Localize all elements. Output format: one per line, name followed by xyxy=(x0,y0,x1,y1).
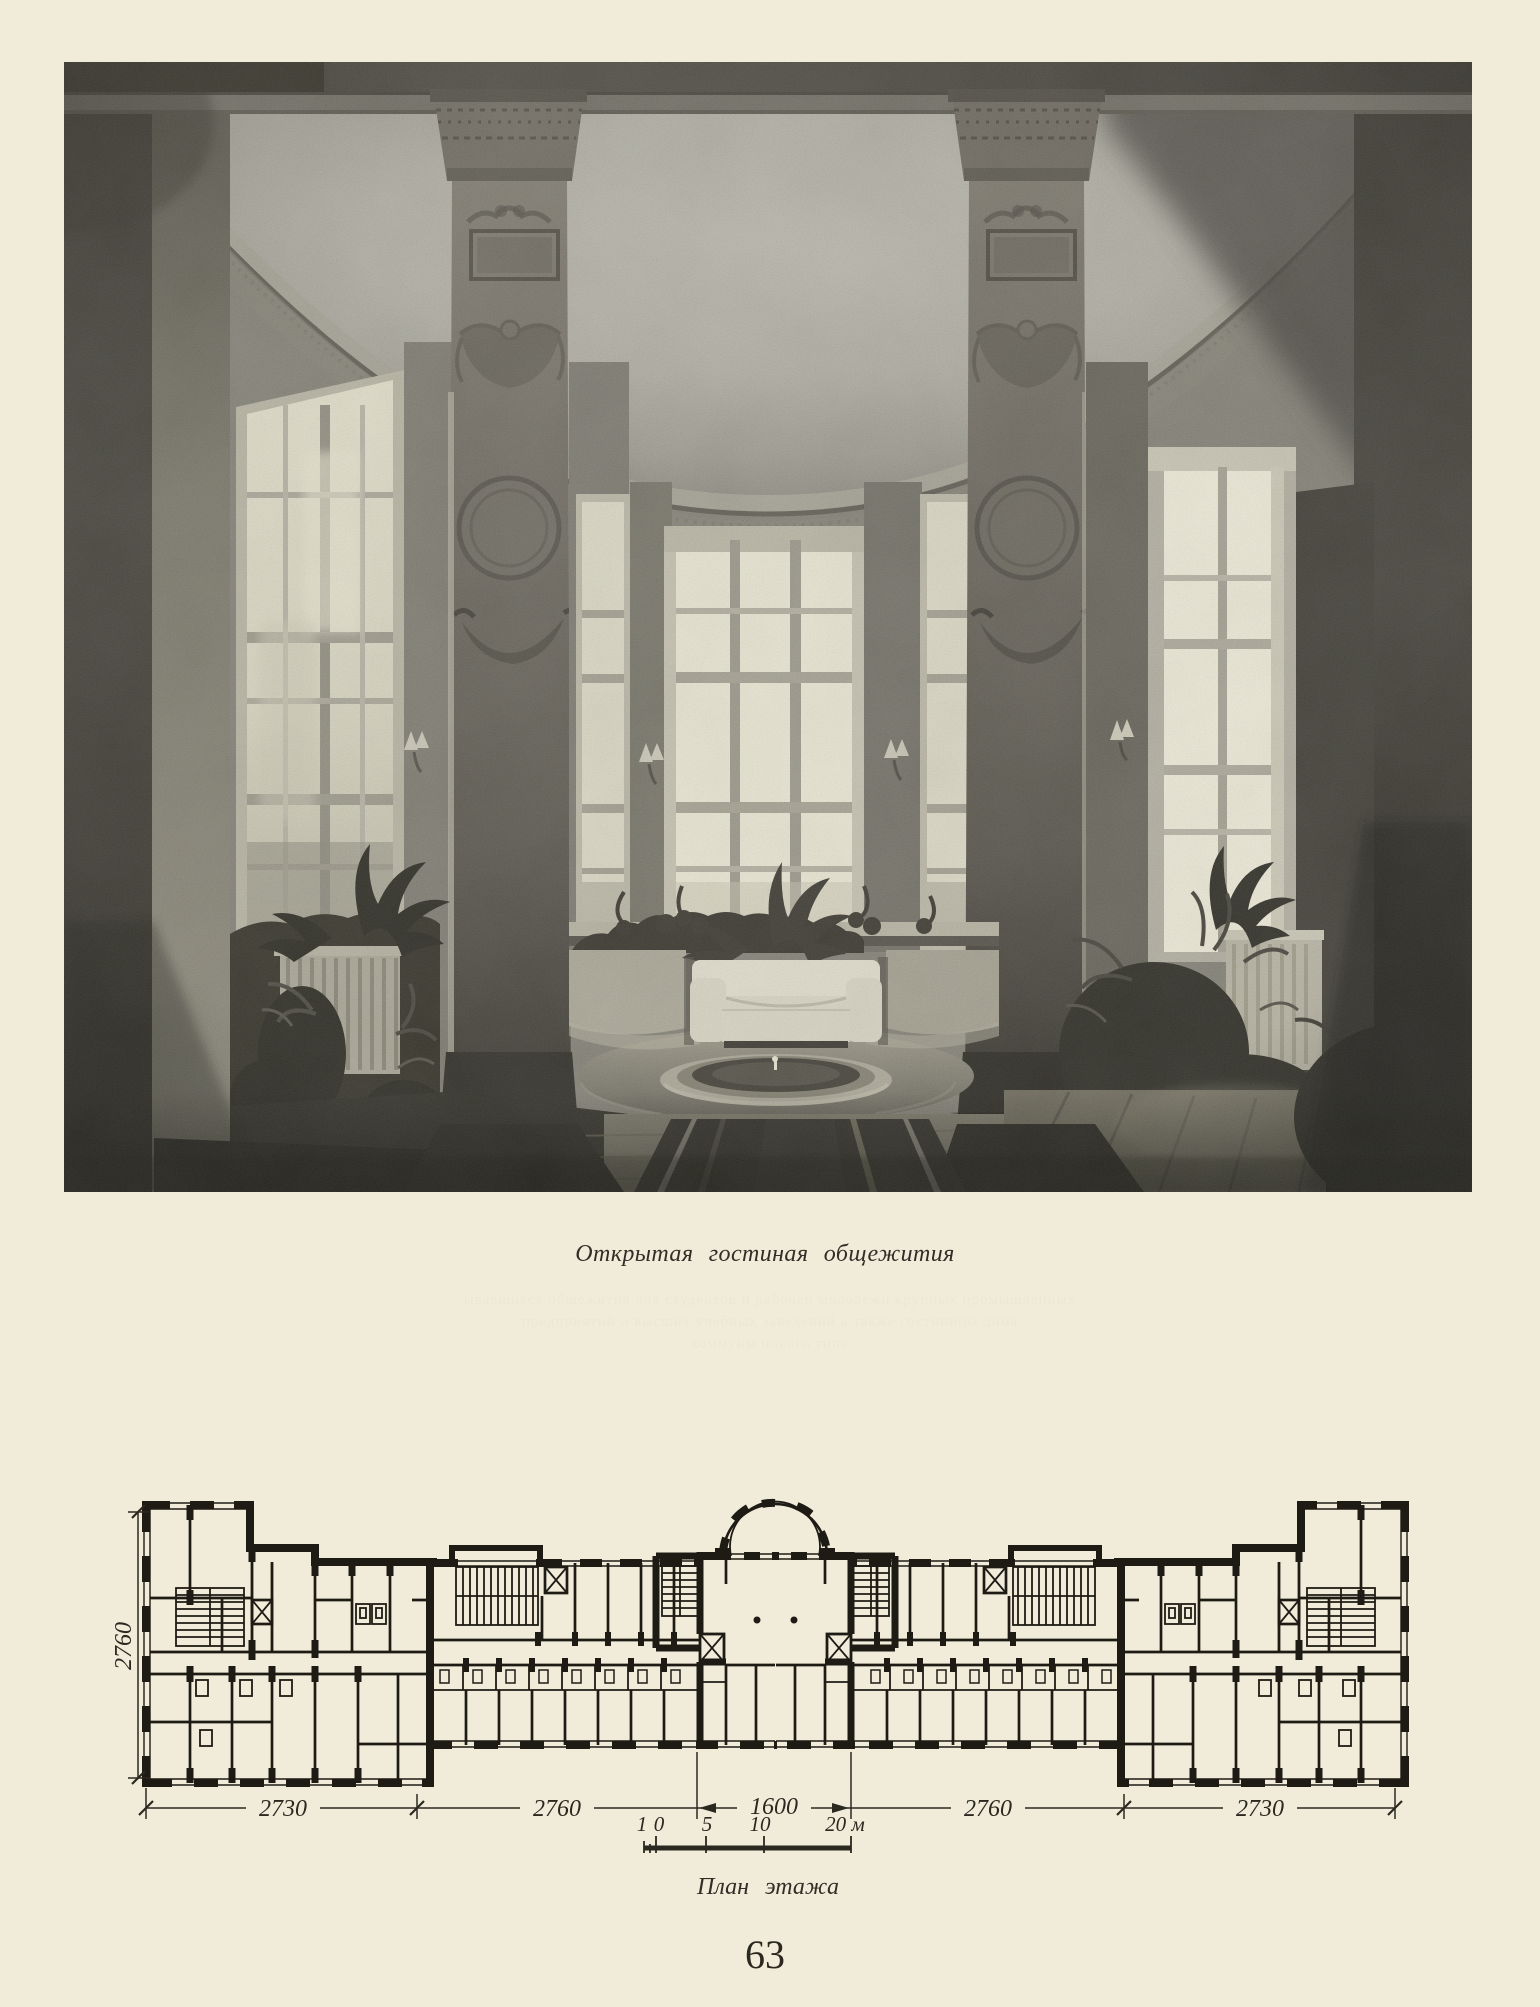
svg-text:2760: 2760 xyxy=(964,1796,1012,1822)
svg-text:1: 1 xyxy=(637,1812,648,1836)
svg-text:2730: 2730 xyxy=(259,1796,307,1822)
svg-text:20 м: 20 м xyxy=(825,1812,865,1836)
svg-text:0: 0 xyxy=(654,1812,665,1836)
svg-text:2760: 2760 xyxy=(111,1622,137,1670)
svg-text:2760: 2760 xyxy=(533,1796,581,1822)
svg-text:10: 10 xyxy=(750,1812,772,1836)
svg-text:5: 5 xyxy=(702,1812,713,1836)
svg-text:2730: 2730 xyxy=(1236,1796,1284,1822)
